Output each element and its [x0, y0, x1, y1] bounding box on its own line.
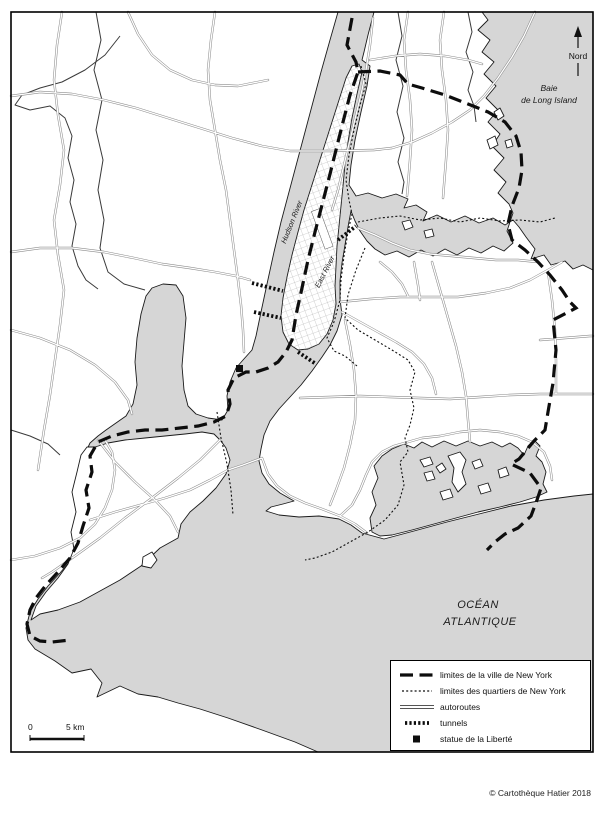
map-legend: limites de la ville de New York limites … [390, 660, 591, 751]
scale-bar: 0 5 km [28, 722, 84, 741]
legend-label: limites des quartiers de New York [437, 686, 566, 696]
map-page: Nord Baie de Long Island Hudson River Ea… [0, 0, 605, 820]
water-layer [26, 12, 593, 752]
legend-label: tunnels [437, 718, 467, 728]
city-limit-dash-icon [397, 670, 437, 680]
ocean-label-line1: OCÉAN [457, 598, 499, 611]
hudson-bays-ocean-water [26, 12, 593, 752]
legend-row-city-limits: limites de la ville de New York [397, 667, 590, 683]
legend-label: statue de la Liberté [437, 734, 512, 744]
quarter-limit-dots-icon [397, 686, 437, 696]
black-square-icon [397, 734, 437, 744]
statue-of-liberty-marker [236, 365, 243, 372]
copyright-notice: © Cartothèque Hatier 2018 [489, 788, 591, 798]
scale-distance: 5 km [66, 722, 84, 732]
flushing-islet-2 [424, 229, 434, 238]
legend-row-statue: statue de la Liberté [397, 731, 590, 747]
bronx-river [396, 12, 404, 194]
rahway-river [11, 430, 60, 455]
double-line-icon [397, 702, 437, 712]
legend-row-tunnels: tunnels [397, 715, 590, 731]
scale-zero: 0 [28, 722, 33, 732]
hackensack-river [94, 12, 145, 290]
sound-islet-2 [505, 139, 513, 148]
legend-row-highways: autoroutes [397, 699, 590, 715]
legend-label: limites de la ville de New York [437, 670, 552, 680]
ocean-label-line2: ATLANTIQUE [442, 616, 516, 628]
bay-label-line2: de Long Island [521, 95, 577, 105]
tunnel-ticks-icon [397, 718, 437, 728]
legend-label: autoroutes [437, 702, 480, 712]
legend-row-quarter-limits: limites des quartiers de New York [397, 683, 590, 699]
north-label: Nord [569, 51, 588, 61]
bay-label-line1: Baie [540, 83, 557, 93]
